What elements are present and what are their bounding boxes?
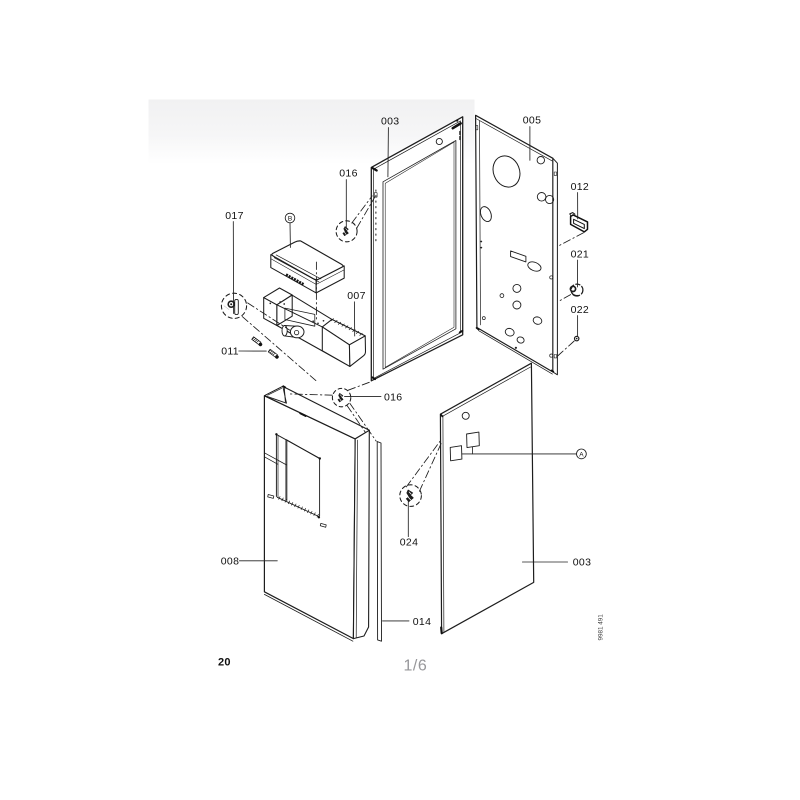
svg-text:1/6: 1/6 <box>404 658 428 675</box>
svg-text:022: 022 <box>571 304 589 316</box>
svg-text:012: 012 <box>571 181 589 193</box>
svg-text:021: 021 <box>571 249 589 261</box>
svg-text:016: 016 <box>384 392 402 404</box>
svg-text:016: 016 <box>339 168 357 180</box>
svg-text:005: 005 <box>523 115 541 127</box>
svg-text:003: 003 <box>573 557 591 569</box>
svg-text:007: 007 <box>347 290 365 302</box>
svg-text:014: 014 <box>413 616 431 628</box>
svg-text:003: 003 <box>381 116 399 128</box>
svg-text:017: 017 <box>225 210 243 222</box>
svg-text:024: 024 <box>400 537 418 549</box>
svg-text:A: A <box>579 452 584 459</box>
svg-text:B: B <box>288 216 292 223</box>
svg-text:9981 491: 9981 491 <box>598 614 605 641</box>
svg-text:011: 011 <box>221 346 239 358</box>
svg-text:008: 008 <box>221 556 239 568</box>
svg-text:20: 20 <box>218 657 231 669</box>
